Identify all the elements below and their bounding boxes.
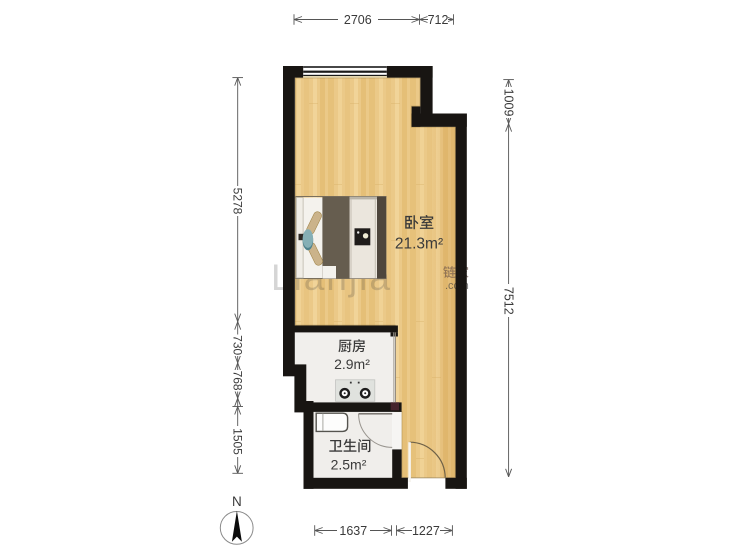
- svg-text:730: 730: [231, 335, 245, 355]
- svg-text:1009: 1009: [502, 89, 516, 117]
- svg-text:768: 768: [231, 371, 245, 391]
- svg-text:N: N: [232, 494, 242, 509]
- svg-text:5278: 5278: [231, 188, 245, 215]
- svg-text:2.9m²: 2.9m²: [334, 356, 370, 372]
- svg-text:21.3m²: 21.3m²: [395, 236, 443, 253]
- svg-text:2.5m²: 2.5m²: [331, 457, 367, 473]
- svg-text:1227: 1227: [412, 524, 440, 538]
- svg-text:712: 712: [428, 13, 449, 27]
- svg-text:7512: 7512: [501, 287, 515, 315]
- svg-text:1505: 1505: [231, 428, 245, 455]
- svg-text:2706: 2706: [344, 13, 372, 27]
- svg-text:1637: 1637: [339, 524, 367, 538]
